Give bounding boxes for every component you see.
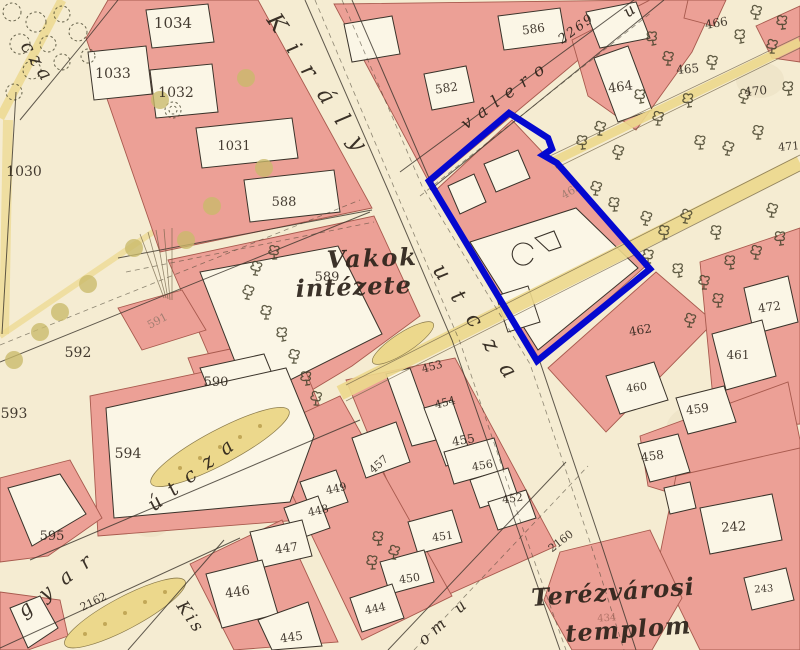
plot-number-243: 243 — [754, 583, 774, 595]
plot-number-589: 589 — [315, 270, 340, 285]
building-plot — [344, 16, 400, 62]
park-tree-icon — [51, 303, 69, 321]
plot-number-595: 595 — [40, 529, 65, 544]
plot-number-471: 471 — [778, 139, 800, 154]
plot-number-1033: 1033 — [95, 66, 131, 82]
building-plot — [664, 482, 696, 514]
plot-number-1032: 1032 — [158, 85, 194, 101]
park-path — [4, 120, 8, 334]
plot-number-592: 592 — [65, 345, 92, 361]
street-label-vakok-line1: Vakok — [326, 242, 418, 274]
plot-number-465: 465 — [676, 61, 700, 77]
median-dot — [258, 424, 262, 428]
plot-number-1030: 1030 — [6, 164, 42, 180]
median-dot — [163, 590, 167, 594]
plot-number-590: 590 — [204, 375, 229, 390]
park-tree-icon — [203, 197, 221, 215]
plot-number-470: 470 — [744, 83, 768, 99]
park-tree-icon — [125, 239, 143, 257]
map-canvas[interactable]: czaKirályutczavalero2269uVakokintézetegy… — [0, 0, 800, 650]
median-dot — [83, 632, 87, 636]
map-viewport[interactable]: czaKirályutczavalero2269uVakokintézetegy… — [0, 0, 800, 650]
park-tree-icon — [31, 323, 49, 341]
park-tree-icon — [79, 275, 97, 293]
median-dot — [143, 600, 147, 604]
park-tree-icon — [177, 231, 195, 249]
plot-number-1034: 1034 — [154, 14, 192, 32]
park-tree-icon — [237, 69, 255, 87]
park-tree-icon — [5, 351, 23, 369]
plot-number-242: 242 — [721, 519, 747, 536]
park-tree-icon — [255, 159, 273, 177]
plot-number-461: 461 — [727, 348, 750, 362]
plot-number-588: 588 — [272, 195, 297, 210]
street-label-vakok-line2: intézete — [295, 270, 412, 303]
plot-number-1031: 1031 — [217, 139, 250, 154]
plot-number-593: 593 — [1, 406, 28, 422]
median-dot — [103, 622, 107, 626]
plot-number-434: 434 — [597, 612, 617, 624]
median-dot — [123, 611, 127, 615]
plot-number-594: 594 — [115, 446, 142, 462]
